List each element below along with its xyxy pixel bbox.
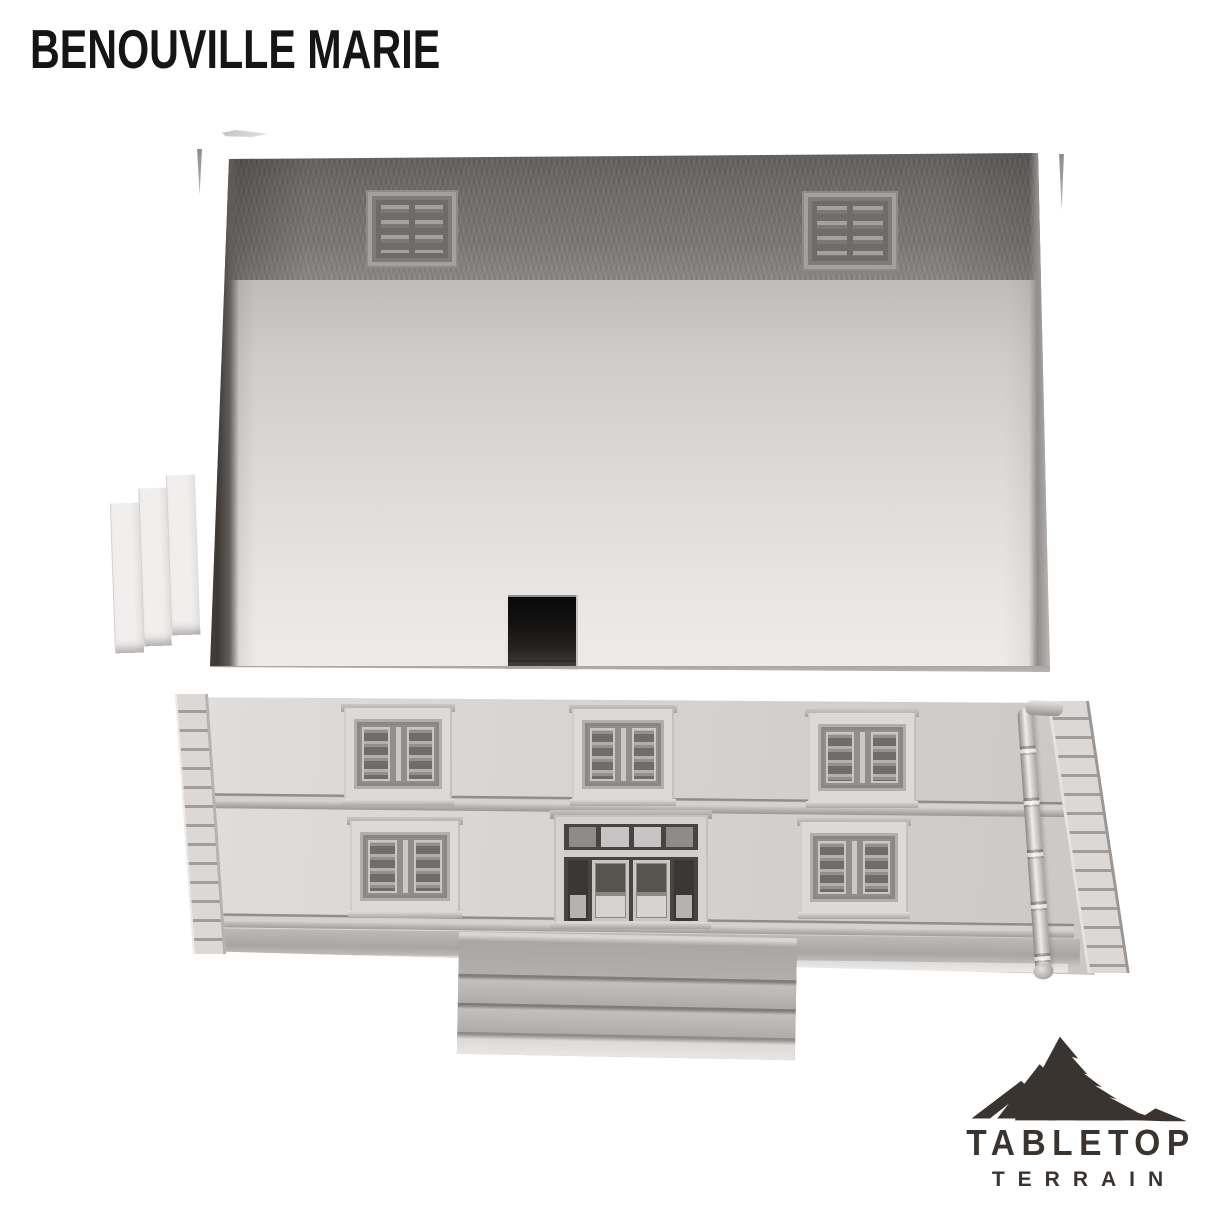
door-frame <box>554 815 708 925</box>
door-recess <box>564 824 698 921</box>
print-debris <box>222 130 268 137</box>
window-reveal <box>582 720 664 789</box>
window-mullion <box>396 727 401 781</box>
window-reveal <box>360 832 450 901</box>
interior-back-wall <box>205 148 1055 282</box>
shutter-slats <box>590 728 615 781</box>
window-lintel <box>347 817 463 825</box>
entrance-door <box>554 815 708 925</box>
transom-windows <box>564 824 698 850</box>
door-lintel <box>550 810 712 819</box>
ceiling-window-left <box>368 192 456 266</box>
drainpipe <box>1017 707 1051 971</box>
interior-left-wall <box>205 148 239 676</box>
shutter-slats <box>871 732 899 783</box>
window-sill <box>348 911 462 918</box>
interior-right-wall <box>1029 148 1055 676</box>
window-mullion <box>621 728 626 781</box>
window-lintel <box>341 704 455 712</box>
door-leaf <box>633 860 670 921</box>
window-frame <box>572 709 674 801</box>
stoop-landing <box>458 932 797 980</box>
door-sill <box>551 922 711 929</box>
interior-top-view <box>205 148 1055 676</box>
product-image: BENOUVILLE MARIE <box>0 0 1214 1214</box>
door-glass <box>596 864 625 892</box>
interior-floor <box>205 280 1055 676</box>
shutter-slats <box>368 840 397 893</box>
transom-pane <box>601 827 628 847</box>
shutter-slats <box>863 841 891 894</box>
window-upper-right <box>808 713 916 803</box>
transom-pane <box>634 827 661 847</box>
logo-brand-text: TABLETOP <box>957 1122 1204 1164</box>
print-support-spike <box>196 149 203 195</box>
shutter-slats <box>826 732 854 783</box>
sidelight-panel <box>676 895 692 918</box>
shutter-slats <box>415 205 443 253</box>
stair-step <box>166 475 200 636</box>
tabletop-terrain-logo: TABLETOP TERRAIN <box>948 1032 1214 1214</box>
window-upper-center <box>572 709 674 801</box>
window-sill <box>798 912 910 919</box>
door-panel <box>596 896 625 917</box>
window-upper-left <box>344 708 452 801</box>
window-lower-right <box>800 822 908 914</box>
entrance-steps <box>457 932 797 1060</box>
window-reveal <box>818 724 906 791</box>
window-sill <box>570 799 676 806</box>
mountain-icon <box>961 1032 1201 1124</box>
window-reveal <box>354 719 442 789</box>
interior-box <box>205 148 1055 676</box>
quoin-corner-left <box>175 694 226 954</box>
print-support-spike <box>1058 154 1065 210</box>
shutter-slats <box>381 205 409 253</box>
door-sidelight <box>674 860 694 921</box>
window-frame <box>808 713 916 803</box>
window-mullion <box>852 841 857 894</box>
shutter-slats <box>362 727 390 781</box>
string-course-molding <box>194 793 1070 817</box>
door-lower <box>564 857 698 921</box>
window-sill <box>806 801 918 808</box>
logo-sub-text: TERRAIN <box>954 1168 1214 1192</box>
window-mullion <box>403 840 408 893</box>
door-glass <box>637 864 666 892</box>
window-sill <box>342 799 454 806</box>
transom-pane <box>666 827 693 847</box>
window-frame <box>350 821 460 913</box>
window-lintel <box>797 818 911 826</box>
shutter-slats <box>632 728 657 781</box>
window-mullion <box>860 732 865 783</box>
ceiling-window-right <box>804 193 896 269</box>
window-lower-left <box>350 821 460 913</box>
door-sidelight <box>568 860 588 921</box>
transom-pane <box>569 827 596 847</box>
window-frame <box>800 822 908 914</box>
shutter-slats <box>817 206 847 256</box>
window-frame <box>344 708 452 801</box>
shutter-slats <box>818 841 846 894</box>
door-leaf <box>592 860 629 921</box>
window-reveal <box>810 833 898 902</box>
window-lintel <box>805 709 919 717</box>
ceiling-window-left-shutters <box>381 205 443 253</box>
shutter-slats <box>853 206 883 256</box>
door-panel <box>637 896 666 917</box>
door-rail <box>564 850 698 857</box>
window-lintel <box>569 705 677 713</box>
quoin-corner-right <box>1047 701 1130 973</box>
sidelight-panel <box>570 895 586 918</box>
ceiling-window-right-shutters <box>817 206 883 256</box>
page-title: BENOUVILLE MARIE <box>30 22 440 77</box>
base-molding <box>192 913 1074 938</box>
interior-front-wall-edge <box>205 666 1055 676</box>
shutter-slats <box>414 840 443 893</box>
shutter-slats <box>407 727 435 781</box>
staircase-piece <box>109 475 201 656</box>
